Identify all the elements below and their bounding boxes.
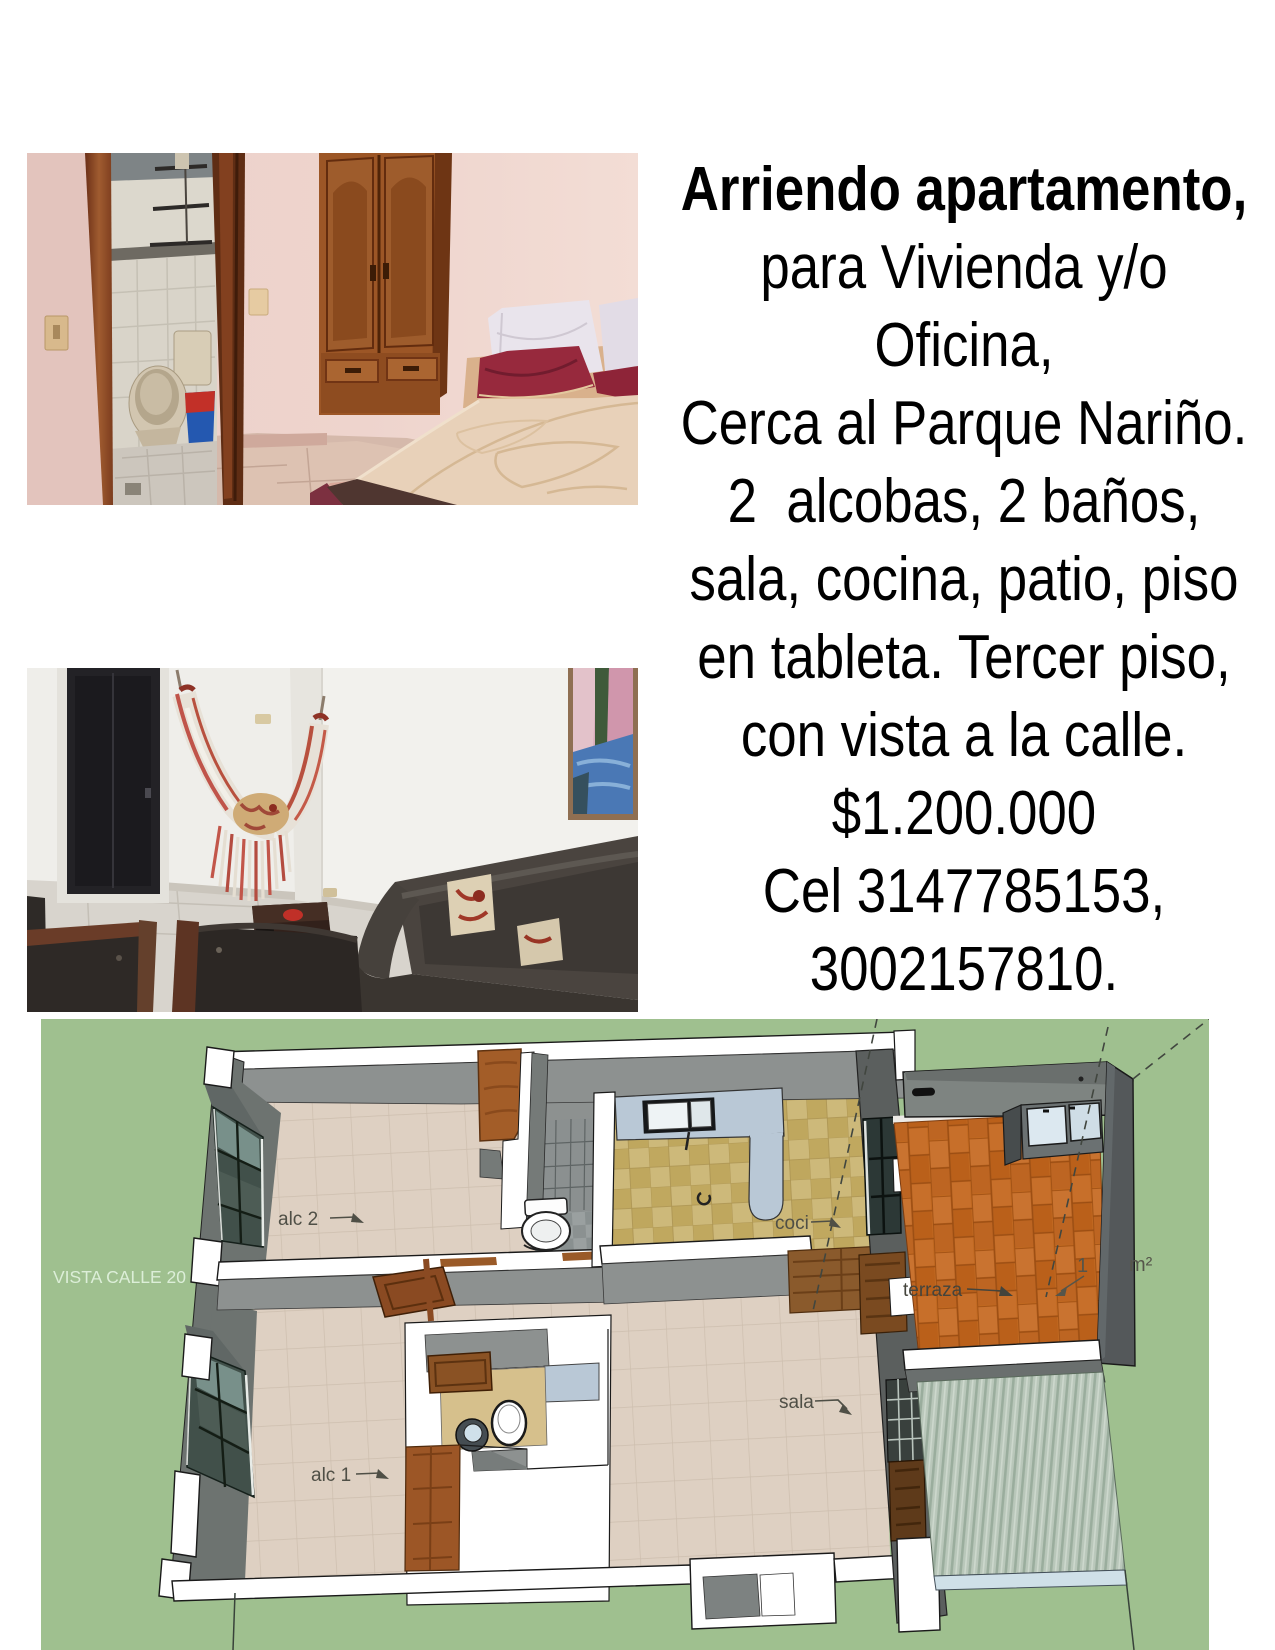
svg-text:alc 1: alc 1 <box>311 1465 351 1486</box>
svg-text:coci: coci <box>775 1213 809 1234</box>
svg-text:m²: m² <box>1129 1254 1153 1276</box>
svg-text:terraza: terraza <box>903 1280 963 1301</box>
svg-text:alc 2: alc 2 <box>278 1209 318 1230</box>
svg-text:1: 1 <box>1077 1255 1088 1277</box>
svg-text:VISTA CALLE 20: VISTA CALLE 20 <box>53 1267 186 1287</box>
svg-text:sala: sala <box>779 1392 814 1413</box>
